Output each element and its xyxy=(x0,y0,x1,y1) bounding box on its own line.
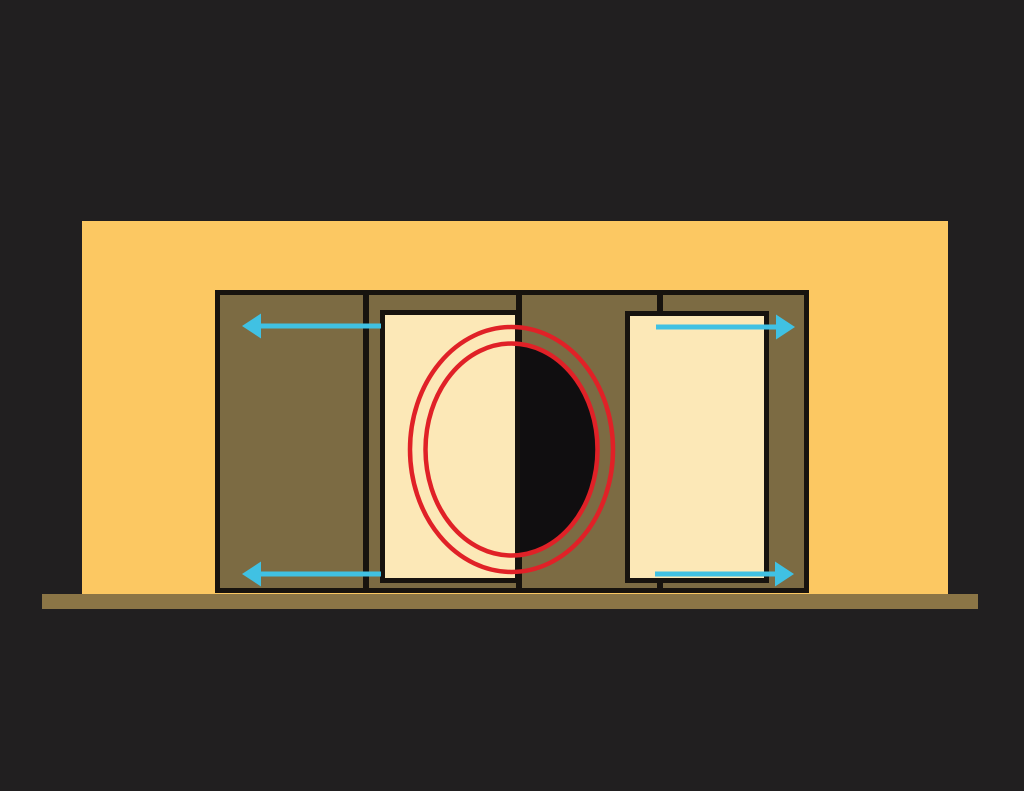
floor xyxy=(42,594,978,609)
right-door-panel-face xyxy=(630,316,764,578)
frame-divider-1 xyxy=(363,290,369,593)
diagram-canvas xyxy=(0,0,1024,791)
sliding-doors-diagram xyxy=(0,0,1024,791)
